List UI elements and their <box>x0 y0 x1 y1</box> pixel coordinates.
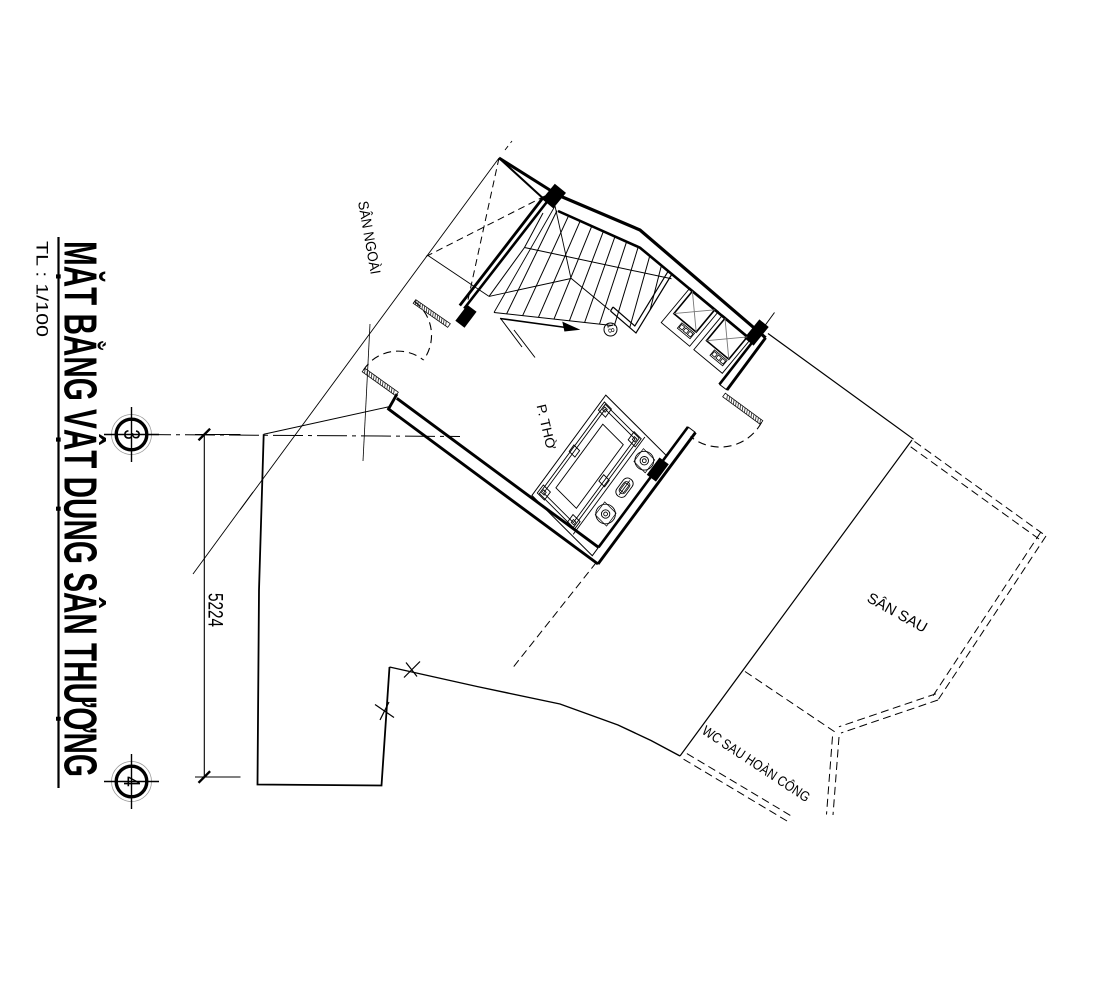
svg-text:4: 4 <box>119 776 145 787</box>
svg-text:3: 3 <box>119 429 145 440</box>
svg-text:5224: 5224 <box>204 593 227 627</box>
svg-text:MẶT BẰNG VẬT DỤNG SÂN THƯỢNG: MẶT BẰNG VẬT DỤNG SÂN THƯỢNG <box>55 241 107 777</box>
svg-text:TL : 1/100: TL : 1/100 <box>33 241 52 337</box>
